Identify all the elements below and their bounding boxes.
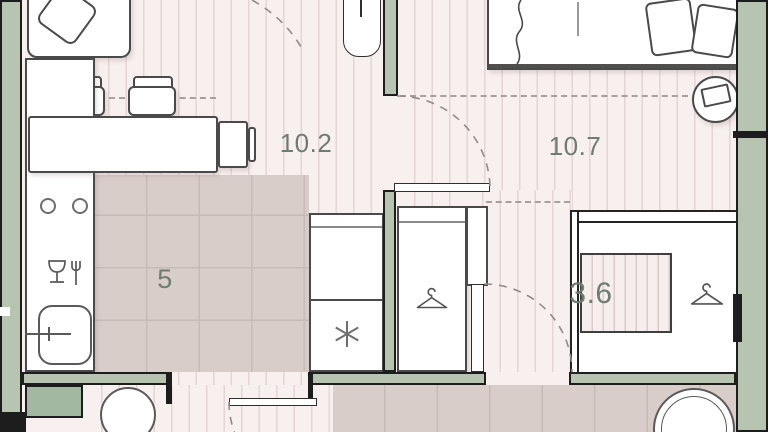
wall-exterior-right: [736, 0, 768, 432]
wall-divider-top: [383, 0, 398, 96]
dishwasher-icon: [44, 258, 84, 300]
door-leaf-bathroom-hall: [471, 284, 484, 372]
sink-tap-handle: [48, 327, 50, 341]
floor-kitchen-zone: [95, 175, 309, 372]
partition-closet-top: [570, 210, 738, 223]
wall-divider-mid: [383, 190, 396, 372]
zone-boundary-line: [486, 201, 570, 203]
wall-bottom-left: [22, 372, 170, 385]
blanket-fold-line: [577, 2, 579, 36]
ventilation-shaft: [25, 385, 83, 418]
bed-pillow: [644, 0, 697, 57]
kitchen-counter-table: [28, 116, 218, 173]
hall-wardrobe: [397, 206, 467, 372]
wall-notch: [733, 131, 768, 138]
wall-bottom-center: [310, 372, 486, 385]
room-label-closet: 3.6: [556, 277, 626, 311]
ceiling-drop-line: [400, 95, 688, 97]
wall-end-cap: [166, 372, 172, 404]
counter-end-unit: [218, 121, 248, 168]
kitchen-sink: [38, 305, 92, 365]
wall-bottom-right: [569, 372, 736, 385]
room-label-living: 10.2: [256, 128, 356, 158]
floor-plan: 10.2 10.7 5 3.6: [0, 0, 768, 432]
room-label-bedroom: 10.7: [525, 131, 625, 161]
burner-icon: [72, 198, 88, 214]
counter-end-tab: [248, 127, 256, 162]
chair: [128, 86, 176, 116]
door-leaf-bedroom: [394, 183, 490, 192]
wall-notch: [733, 294, 742, 342]
bed-pillow: [690, 3, 739, 59]
fridge-top-line: [311, 226, 382, 228]
fridge-divider: [311, 299, 382, 301]
door-hinge-stem: [360, 0, 362, 17]
snowflake-icon: [332, 319, 362, 349]
hanger-icon: [414, 286, 450, 313]
room-label-kitchen: 5: [140, 264, 190, 296]
wardrobe-top-line: [399, 221, 465, 223]
blanket-edge: [503, 0, 539, 66]
burner-icon: [40, 198, 56, 214]
wall-exterior-left: [0, 0, 22, 432]
door-leaf-balcony: [343, 0, 381, 57]
door-leaf-bottom: [229, 398, 317, 406]
wall-corner-block: [0, 412, 26, 432]
wall-joint-gap: [0, 307, 10, 316]
hanger-icon: [688, 281, 726, 310]
hall-shelf-unit: [466, 206, 488, 286]
kitchen-counter-column: [25, 58, 95, 372]
fridge: [309, 213, 384, 372]
